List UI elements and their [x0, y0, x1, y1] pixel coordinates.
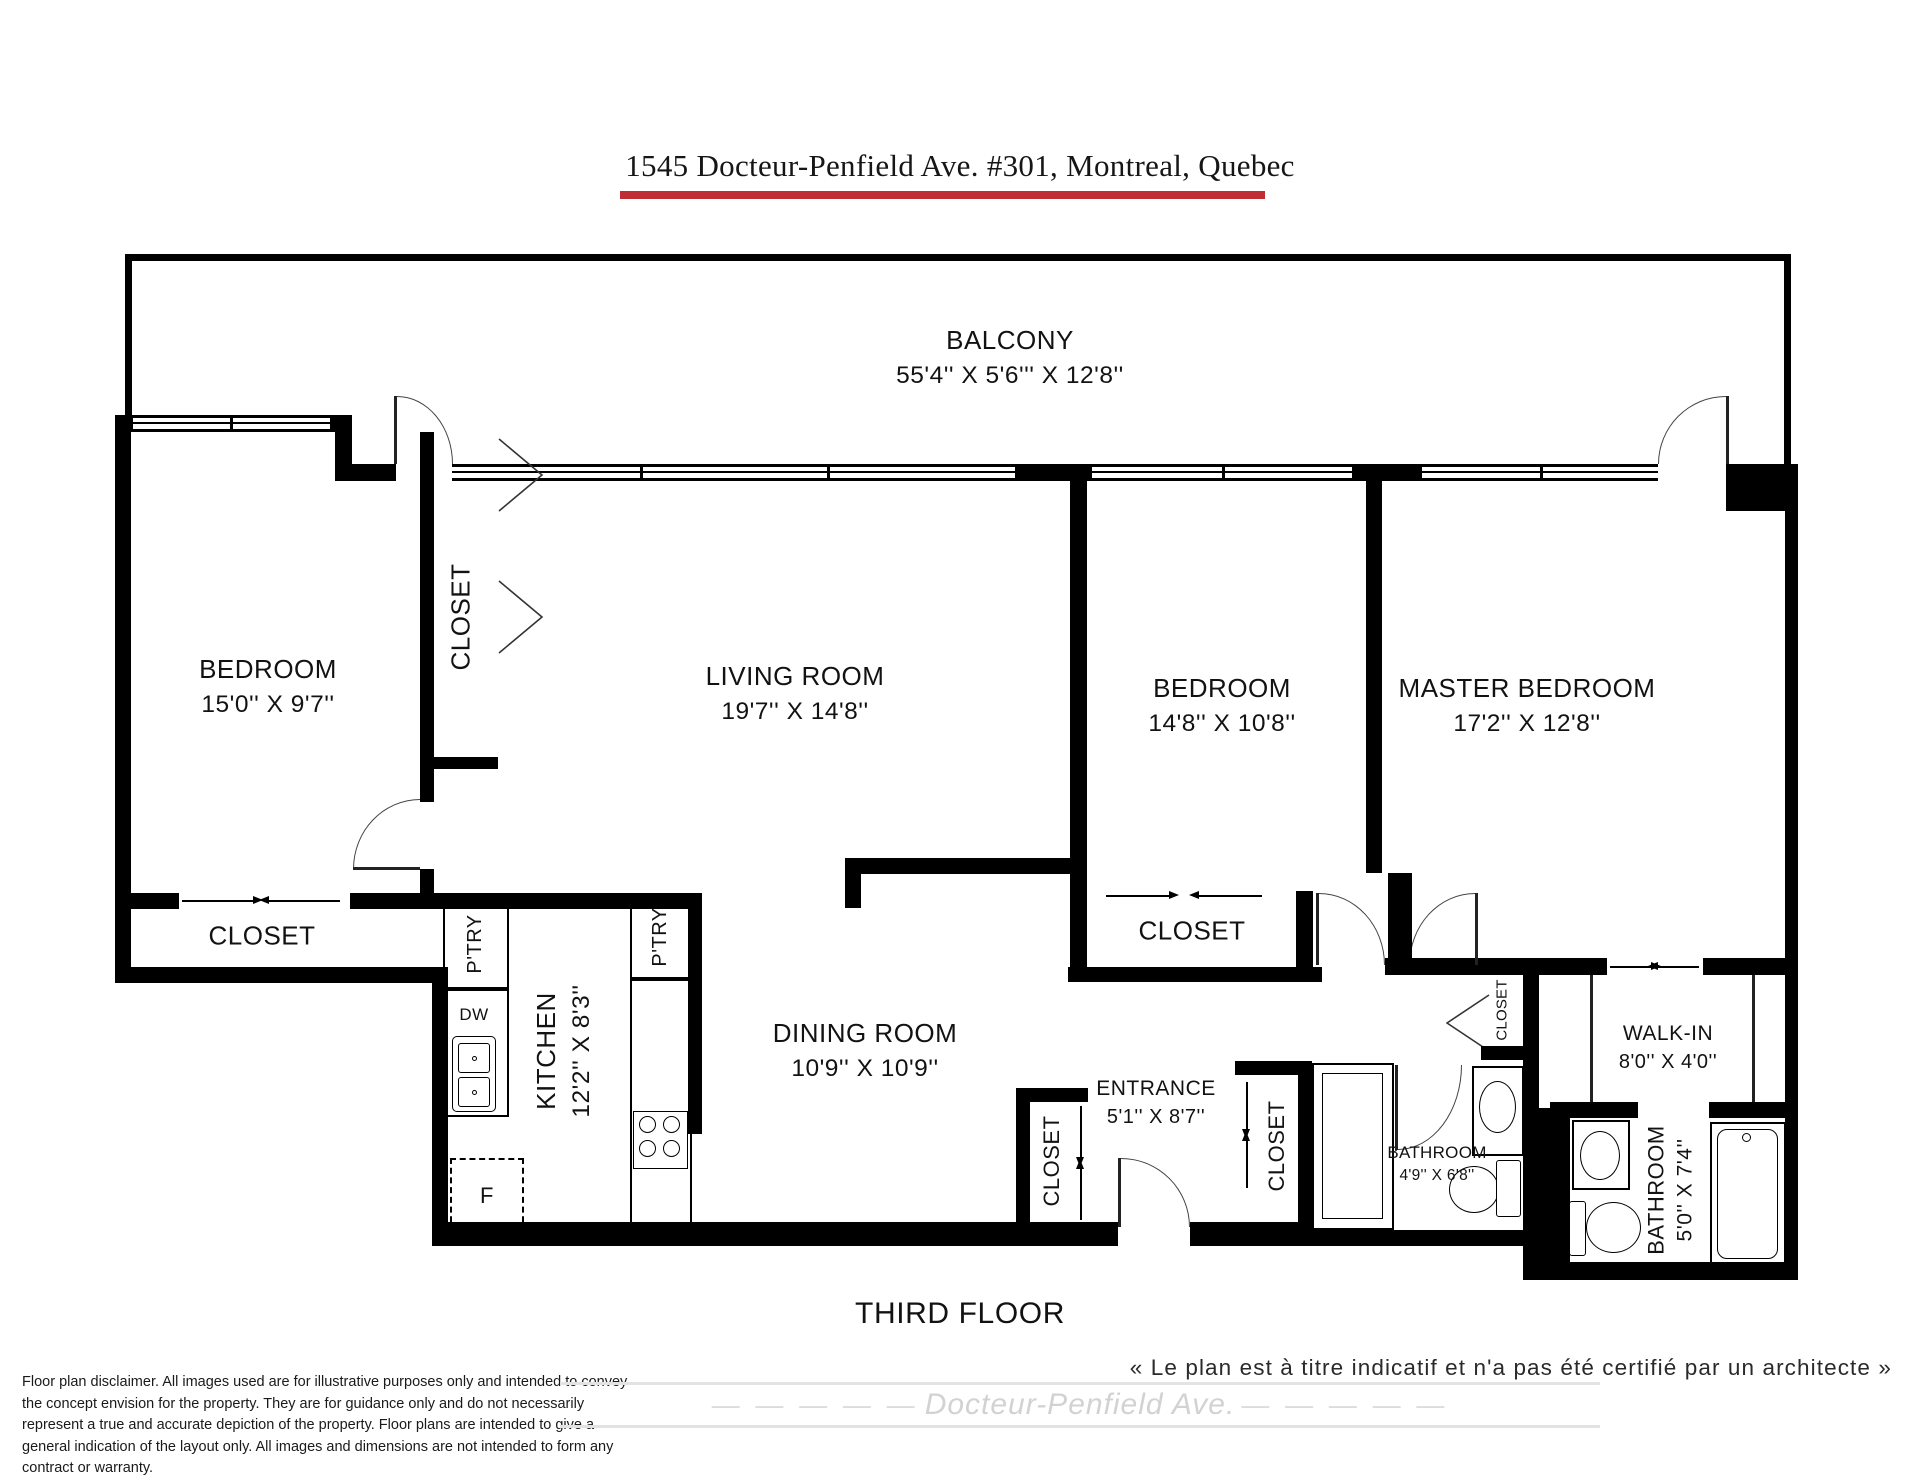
sink-icon	[1479, 1081, 1516, 1133]
sliding-door-arrow	[268, 900, 340, 902]
stove-icon	[639, 1140, 656, 1157]
sliding-door-arrow	[182, 900, 254, 902]
wall	[125, 254, 1791, 261]
wall	[1481, 1046, 1523, 1060]
wall	[1015, 464, 1092, 481]
room-label-walk-in: WALK-IN8'0'' X 4'0''	[1619, 1021, 1717, 1075]
pantry-label: P'TRY	[463, 914, 489, 973]
door-arc	[1409, 893, 1475, 965]
street-name: Docteur-Penfield Ave.	[925, 1388, 1236, 1421]
wall	[1703, 958, 1798, 975]
closet-label: CLOSET	[444, 563, 477, 670]
door-leaf	[1395, 1065, 1398, 1150]
door-leaf	[1726, 396, 1729, 464]
wall	[115, 893, 179, 909]
wall	[1068, 967, 1322, 982]
door-arc	[1398, 1065, 1462, 1150]
stove-icon	[663, 1140, 680, 1157]
architect-note: « Le plan est à titre indicatif et n'a p…	[1130, 1355, 1892, 1381]
wall	[1352, 464, 1422, 481]
closet-label: CLOSET	[208, 919, 315, 952]
wall	[845, 858, 861, 908]
wall	[1366, 481, 1382, 873]
shower-icon	[1322, 1073, 1383, 1219]
door-leaf	[1475, 893, 1478, 965]
dishwasher-label: DW	[459, 1004, 488, 1026]
street-dashes: — — — — —	[1241, 1389, 1448, 1420]
dishwasher-icon	[472, 1090, 477, 1095]
room-label-master-bedroom: MASTER BEDROOM17'2'' X 12'8''	[1399, 672, 1656, 740]
wall	[1070, 873, 1087, 973]
sliding-door-arrow	[1080, 1168, 1082, 1220]
floor-plan: BALCONY55'4'' X 5'6''' X 12'8'' BEDROOM1…	[0, 0, 1920, 1483]
toilet-icon	[1586, 1202, 1641, 1253]
closet-label: CLOSET	[1263, 1100, 1291, 1191]
street-dashes: — — — — —	[712, 1389, 919, 1420]
stove-icon	[639, 1116, 656, 1133]
room-label-dining-room: DINING ROOM10'9'' X 10'9''	[773, 1017, 958, 1085]
wall	[350, 893, 702, 909]
door-leaf	[394, 396, 397, 464]
wall	[1523, 1108, 1570, 1280]
disclaimer-text: Floor plan disclaimer. All images used a…	[22, 1372, 642, 1480]
door-leaf	[1316, 893, 1319, 965]
sink-icon	[1580, 1131, 1620, 1180]
closet-label: CLOSET	[1138, 914, 1245, 947]
wall	[688, 893, 702, 1134]
pantry-label: P'TRY	[648, 907, 674, 966]
wall	[1417, 958, 1523, 975]
fridge-label: F	[480, 1182, 494, 1210]
kitchen-counter	[630, 979, 692, 1225]
bifold-door-icon	[498, 438, 544, 512]
window	[1422, 464, 1658, 481]
wall	[1523, 958, 1607, 975]
toilet-icon	[1569, 1201, 1586, 1256]
wall	[350, 464, 396, 481]
wall	[420, 432, 434, 802]
window	[133, 415, 330, 432]
room-label-living-room: LIVING ROOM19'7'' X 14'8''	[706, 660, 885, 728]
wall	[1016, 1088, 1030, 1228]
bifold-door-icon	[1446, 994, 1490, 1052]
bathtub-icon	[1717, 1129, 1778, 1259]
floor-plan-page: 1545 Docteur-Penfield Ave. #301, Montrea…	[0, 0, 1920, 1483]
room-label-kitchen: KITCHEN12'2'' X 8'3''	[530, 984, 598, 1117]
wall	[434, 757, 498, 769]
room-label-balcony: BALCONY55'4'' X 5'6''' X 12'8''	[896, 324, 1124, 392]
toilet-icon	[1496, 1160, 1521, 1217]
wall	[432, 967, 448, 1246]
wall	[1785, 464, 1798, 1280]
wall	[1070, 481, 1087, 873]
door-leaf	[353, 867, 420, 870]
wall	[125, 254, 132, 426]
door-arc	[1319, 893, 1385, 965]
wall	[1709, 1102, 1787, 1118]
room-label-bedroom2: BEDROOM14'8'' X 10'8''	[1148, 672, 1295, 740]
wall	[115, 967, 448, 983]
room-label-entrance: ENTRANCE5'1'' X 8'7''	[1096, 1076, 1216, 1130]
wall	[1310, 1230, 1530, 1246]
bathtub-faucet-icon	[1742, 1133, 1751, 1142]
sliding-door-arrow	[1106, 895, 1170, 897]
wall	[1550, 1262, 1798, 1280]
door-leaf	[1590, 975, 1593, 1102]
wall	[1296, 891, 1313, 973]
wall	[1298, 1061, 1312, 1233]
wall	[1550, 1102, 1638, 1118]
sliding-door-arrow	[1246, 1140, 1248, 1188]
sliding-door-arrow	[1198, 895, 1262, 897]
sliding-door-arrow	[1657, 966, 1699, 968]
door-arc	[1121, 1158, 1190, 1227]
wall	[1523, 958, 1539, 1108]
door-leaf	[1118, 1158, 1121, 1227]
floor-label: THIRD FLOOR	[855, 1297, 1065, 1331]
sliding-door-arrow	[1246, 1082, 1248, 1130]
closet-label: CLOSET	[1492, 979, 1511, 1040]
room-label-bathroom-main: BATHROOM5'0'' X 7'4''	[1642, 1125, 1699, 1254]
wall	[845, 858, 1087, 874]
sliding-door-arrow	[1610, 966, 1652, 968]
door-arc	[353, 799, 420, 869]
wall	[1388, 873, 1412, 970]
sliding-door-arrow	[1080, 1106, 1082, 1158]
door-leaf	[1752, 975, 1755, 1102]
dishwasher-icon	[472, 1056, 477, 1061]
street-watermark: — — — — —Docteur-Penfield Ave.— — — — —	[560, 1382, 1600, 1428]
closet-label: CLOSET	[1038, 1115, 1066, 1206]
window	[1092, 464, 1352, 481]
wall	[1784, 254, 1791, 468]
stove-icon	[663, 1116, 680, 1133]
room-label-bedroom1: BEDROOM15'0'' X 9'7''	[199, 653, 337, 721]
bifold-door-icon	[498, 580, 544, 654]
wall	[1190, 1222, 1310, 1246]
room-label-bathroom-small: BATHROOM4'9'' X 6'8''	[1387, 1142, 1486, 1186]
door-arc	[1658, 396, 1726, 464]
